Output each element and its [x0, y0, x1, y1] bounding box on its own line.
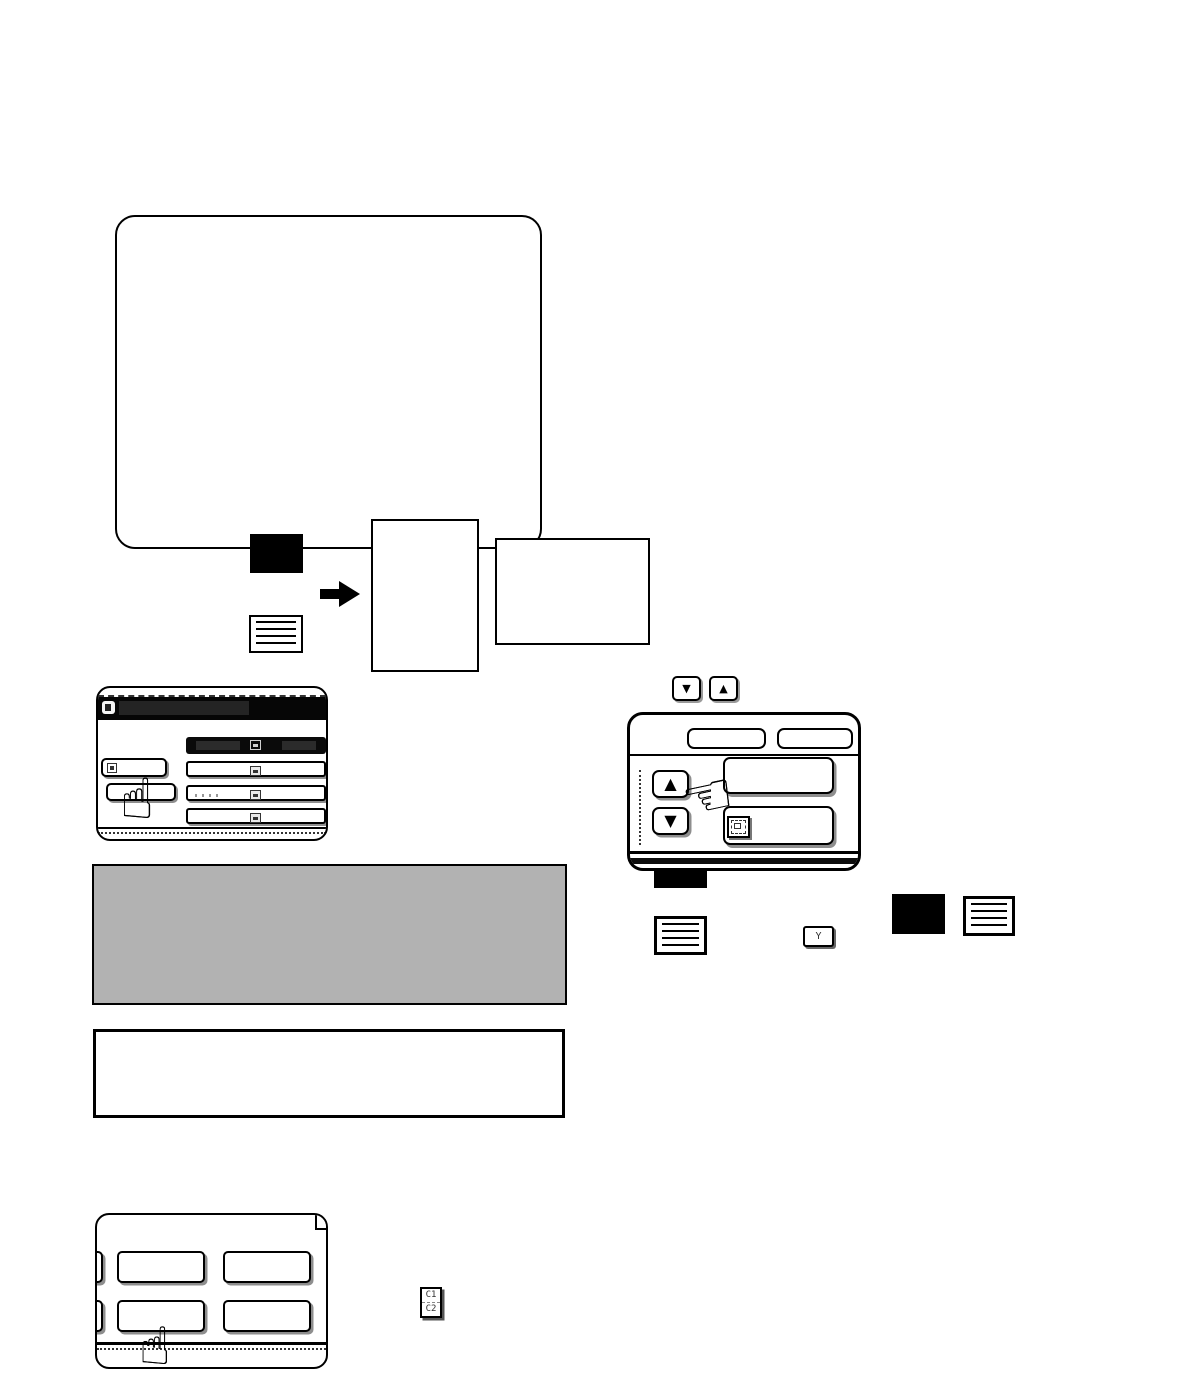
panel-title-bar	[98, 697, 326, 720]
menu-button-top-left[interactable]	[117, 1251, 205, 1283]
return-icon	[102, 701, 115, 714]
panel-footer-line	[97, 1342, 326, 1345]
panel-divider-line	[630, 754, 858, 756]
decrease-arrow-button[interactable]: ▼	[652, 807, 689, 835]
copy-text-block	[654, 916, 707, 955]
arrow-right-icon	[320, 589, 340, 599]
dotted-guide-line	[639, 770, 641, 845]
arrow-right-head-icon	[339, 581, 360, 607]
menu-panel: ☝	[95, 1213, 328, 1369]
panel-footer-band	[630, 858, 858, 864]
y-key-icon: Y	[803, 926, 834, 947]
text-lines	[971, 903, 1007, 929]
manual-page: ☝ ▼ ▲ ▲ ▼ ☜ Y ☝ C	[0, 0, 1192, 1374]
zoom-setting-panel: ▲ ▼ ☜	[627, 712, 861, 871]
paper-feed-icon	[250, 766, 261, 776]
title-text-block	[119, 701, 249, 715]
pointing-hand-icon: ☝	[139, 1321, 171, 1369]
page-corner-mark	[315, 1215, 326, 1230]
tab-button-left[interactable]	[687, 728, 766, 749]
paper-select-row[interactable]	[186, 808, 326, 824]
scroll-up-key[interactable]: ▲	[709, 676, 738, 701]
pointing-hand-icon: ☝	[120, 772, 154, 828]
panel-footer-line	[630, 851, 858, 854]
row-text-block	[282, 741, 316, 750]
copy-text-block	[963, 896, 1015, 936]
paper-select-row[interactable]	[186, 761, 326, 777]
menu-button-clipped[interactable]	[95, 1251, 103, 1283]
original-image-block	[250, 534, 303, 573]
tray-key-line1: C1	[422, 1289, 440, 1303]
menu-button-clipped[interactable]	[95, 1300, 103, 1332]
tab-button-right[interactable]	[777, 728, 853, 749]
figure-dual-page-copy	[115, 215, 542, 549]
paper-feed-icon	[250, 790, 261, 800]
ratio-display-button-top[interactable]	[723, 757, 834, 794]
note-box-white	[93, 1029, 565, 1118]
panel-footer-dashed-line	[98, 832, 326, 834]
row-text-block	[196, 741, 240, 750]
copy-image-block	[892, 894, 945, 934]
special-modes-panel: ☝	[96, 686, 328, 841]
note-box-gray	[92, 864, 567, 1005]
scroll-down-key[interactable]: ▼	[672, 676, 701, 701]
panel-footer-dashed-line	[97, 1348, 326, 1350]
faint-text-dots	[195, 794, 219, 797]
landscape-copy-sheet	[495, 538, 650, 645]
original-text-block	[249, 615, 303, 653]
portrait-copy-page	[371, 519, 479, 672]
paper-feed-icon	[250, 813, 261, 823]
paper-select-row[interactable]	[186, 785, 326, 801]
text-lines	[662, 923, 699, 948]
page-icon	[107, 763, 117, 773]
paper-select-row-selected[interactable]	[186, 737, 326, 754]
menu-button-bottom-right[interactable]	[223, 1300, 311, 1332]
tray-key-line2: C2	[422, 1303, 440, 1316]
paper-feed-icon	[250, 740, 261, 750]
menu-button-top-right[interactable]	[223, 1251, 311, 1283]
tray-key-icon: C1 C2	[420, 1287, 442, 1318]
text-lines	[256, 621, 296, 647]
